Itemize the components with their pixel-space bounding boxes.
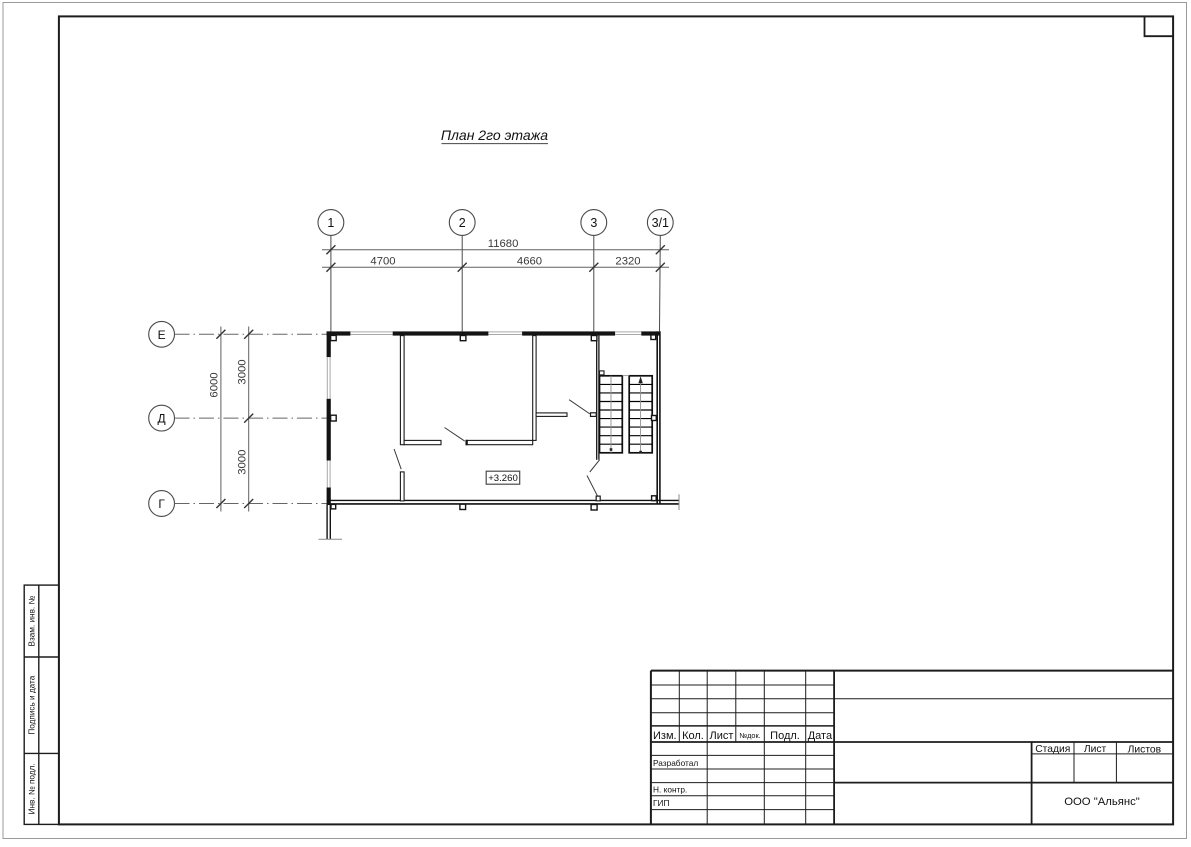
svg-text:11680: 11680 <box>488 238 519 250</box>
svg-text:3000: 3000 <box>236 359 248 384</box>
svg-text:№док.: №док. <box>739 731 760 740</box>
svg-text:+3.260: +3.260 <box>488 473 518 484</box>
svg-text:ООО "Альянс": ООО "Альянс" <box>1064 796 1140 808</box>
svg-text:Подл.: Подл. <box>770 730 800 742</box>
svg-text:4660: 4660 <box>517 256 542 268</box>
svg-text:План 2го этажа: План 2го этажа <box>441 127 548 143</box>
svg-text:Взам. инв. №: Взам. инв. № <box>28 596 37 647</box>
svg-text:2: 2 <box>459 216 466 230</box>
svg-text:Кол.: Кол. <box>682 730 704 742</box>
svg-text:Подпись и дата: Подпись и дата <box>28 675 37 734</box>
svg-text:Стадия: Стадия <box>1035 744 1070 755</box>
svg-text:3: 3 <box>590 216 597 230</box>
svg-text:Г: Г <box>158 497 165 511</box>
svg-text:4700: 4700 <box>370 256 395 268</box>
svg-text:Дата: Дата <box>808 730 833 742</box>
svg-text:Листов: Листов <box>1128 745 1162 756</box>
svg-text:3/1: 3/1 <box>652 216 669 230</box>
svg-text:2320: 2320 <box>615 256 640 268</box>
svg-text:Е: Е <box>158 328 166 342</box>
svg-text:Изм.: Изм. <box>653 730 677 742</box>
svg-text:Разработал: Разработал <box>653 758 698 768</box>
svg-text:Н. контр.: Н. контр. <box>653 785 687 795</box>
svg-text:ГИП: ГИП <box>653 798 669 808</box>
svg-text:Лист: Лист <box>1084 744 1107 755</box>
svg-text:3000: 3000 <box>236 450 248 475</box>
svg-text:Инв. № подл.: Инв. № подл. <box>28 763 37 814</box>
svg-text:1: 1 <box>327 216 334 230</box>
svg-text:Лист: Лист <box>710 730 734 742</box>
svg-text:Д: Д <box>158 412 166 426</box>
svg-text:6000: 6000 <box>209 372 221 397</box>
